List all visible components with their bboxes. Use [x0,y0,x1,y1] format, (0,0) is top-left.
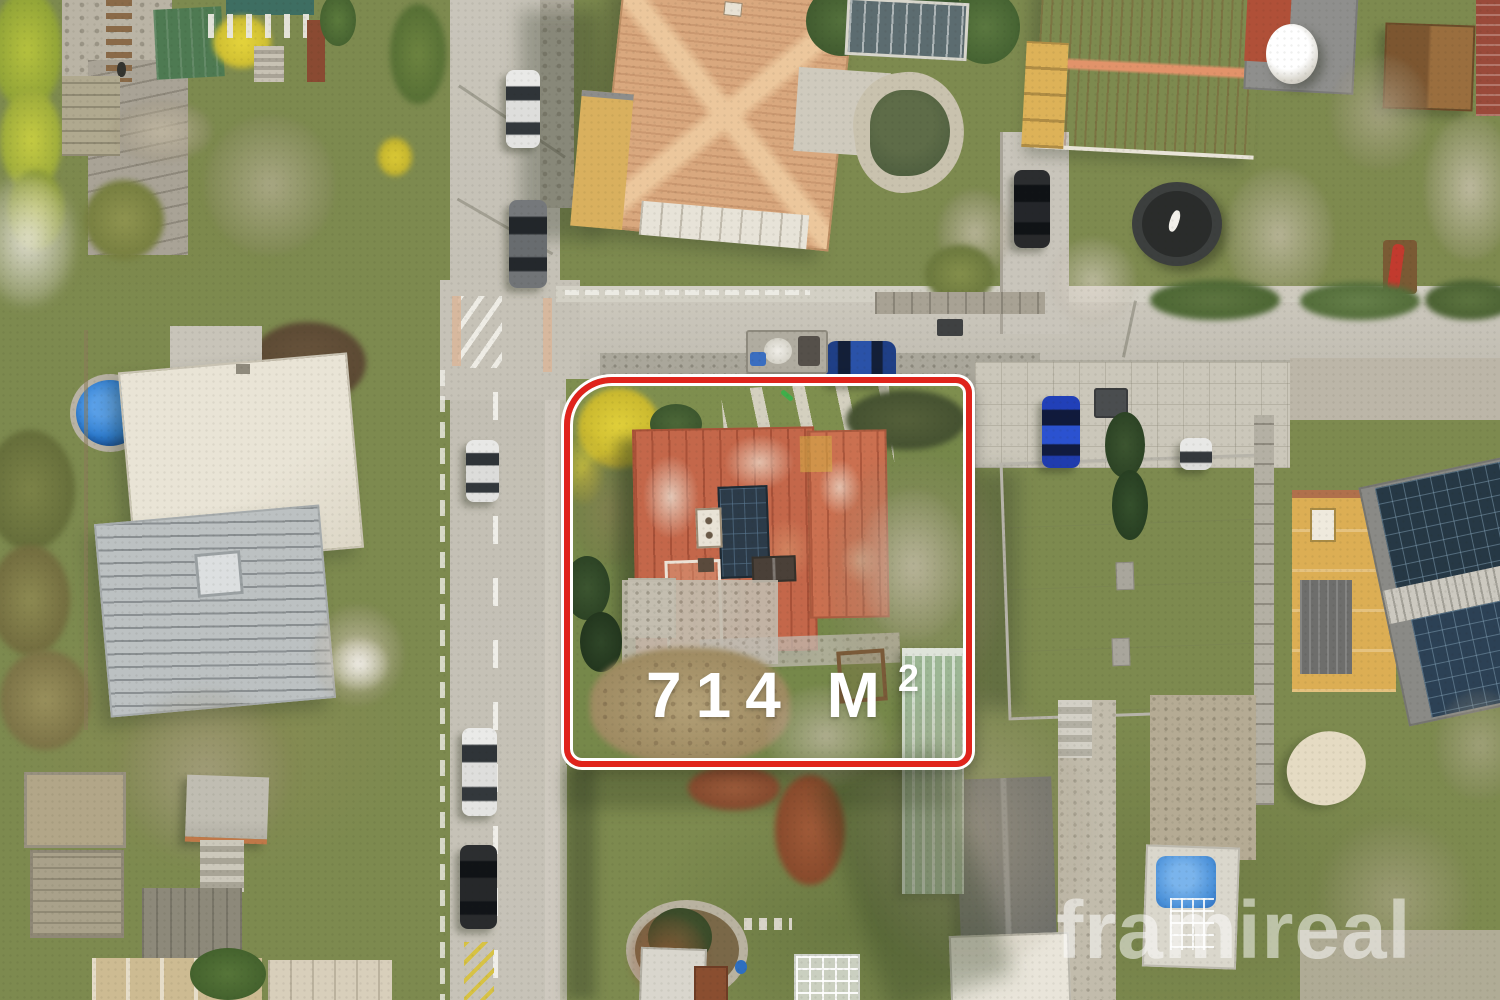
utility-trailer [746,330,828,374]
red-trellis-fence [1476,0,1500,116]
conifer-pair [1112,470,1148,540]
giveway-hatching [458,296,502,368]
yellow-bush [378,138,412,176]
red-shrub [688,766,780,810]
property-wall [1254,415,1274,805]
fence-shadow-vertical [566,768,596,1000]
blue-car-parking [1042,396,1080,468]
red-tile-roof-house [1034,0,1262,160]
yellow-house-gray-roof [1300,580,1352,674]
aerial-photo: 714 M2 framireal [0,0,1500,1000]
conifer-pair [1105,412,1145,478]
flat-roof-house-gray-section [94,505,336,718]
raised-garden-beds [30,850,124,938]
bottom-roofs-light [268,960,392,1000]
south-gravel-strip-east [1290,358,1500,420]
bare-tree [1330,55,1430,170]
olive-bushes [84,180,164,260]
area-value: 714 M [646,659,894,731]
bare-tree [205,115,335,255]
satellite-dish [1266,24,1318,84]
hedge-band-north-of-road [1300,282,1420,320]
bare-tree [112,100,212,162]
shed-stairs [200,840,244,892]
yellow-house-wall [1021,41,1068,149]
white-car-parking [1180,438,1212,470]
teal-pool-cover [226,0,314,15]
white-blossom-cluster [330,638,388,690]
shrub-row-west [0,650,90,750]
gravel-yard [1150,695,1256,860]
black-car-south [460,845,497,929]
roadside-fence-line [440,370,445,1000]
watermark: framireal [1056,884,1411,978]
white-car-north [506,70,540,148]
trailer-tools-dark [798,336,820,366]
hedge-band-north-of-road [1150,280,1280,320]
glass-conservatory [845,0,970,61]
garden-fence-line [84,330,88,730]
stepping-stones [744,918,792,930]
roof-skylight [194,550,244,598]
yellow-house-window [1310,508,1336,542]
blossom-tree [1050,238,1136,324]
white-car-south [462,728,497,816]
roof-vent [236,364,250,374]
brown-shed-roof [694,966,728,1000]
roof-vent-unit [1116,562,1135,591]
trailer-tarp-white [764,338,792,364]
sidewalk-fence [565,290,810,295]
roof-vent-unit [1112,638,1131,667]
garden-wall-north-of-road [875,292,1045,314]
green-bush [190,948,266,1000]
garden-shed-gray-roof [185,775,269,845]
waste-bins-north [937,319,963,336]
gray-car-north [509,200,547,288]
garden-stairs [254,46,284,82]
blue-barrel [735,960,747,974]
person-on-path [117,62,126,77]
tactile-strip-west [452,296,461,366]
garden-bushes [390,4,446,104]
black-car-driveway [1014,170,1050,248]
yellow-zigzag-marking [464,942,494,1000]
area-label: 714 M2 [646,658,919,732]
chimney [723,1,742,17]
white-car-mid [466,440,499,502]
area-superscript: 2 [898,658,919,700]
greenhouse [794,954,860,1000]
raised-garden-beds [24,772,126,848]
tactile-strip-east [543,298,552,372]
garden-beds [62,76,120,156]
trailer-tarp-blue [750,352,766,366]
